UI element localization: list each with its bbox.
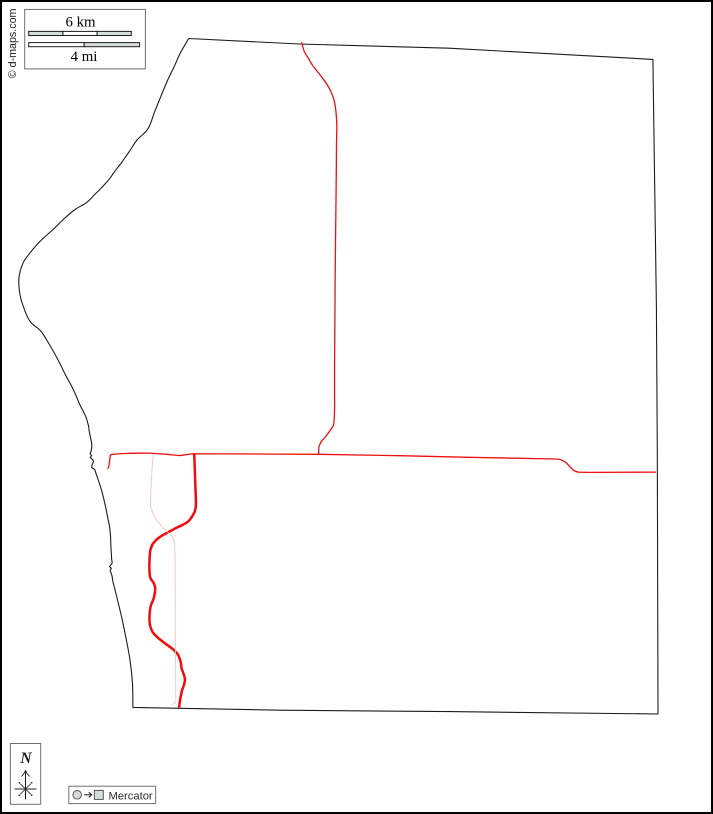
- svg-text:N: N: [19, 750, 32, 767]
- svg-text:© d-maps.com: © d-maps.com: [7, 8, 19, 78]
- svg-text:Mercator: Mercator: [109, 791, 153, 803]
- svg-text:4 mi: 4 mi: [71, 49, 98, 65]
- svg-text:6 km: 6 km: [65, 14, 95, 30]
